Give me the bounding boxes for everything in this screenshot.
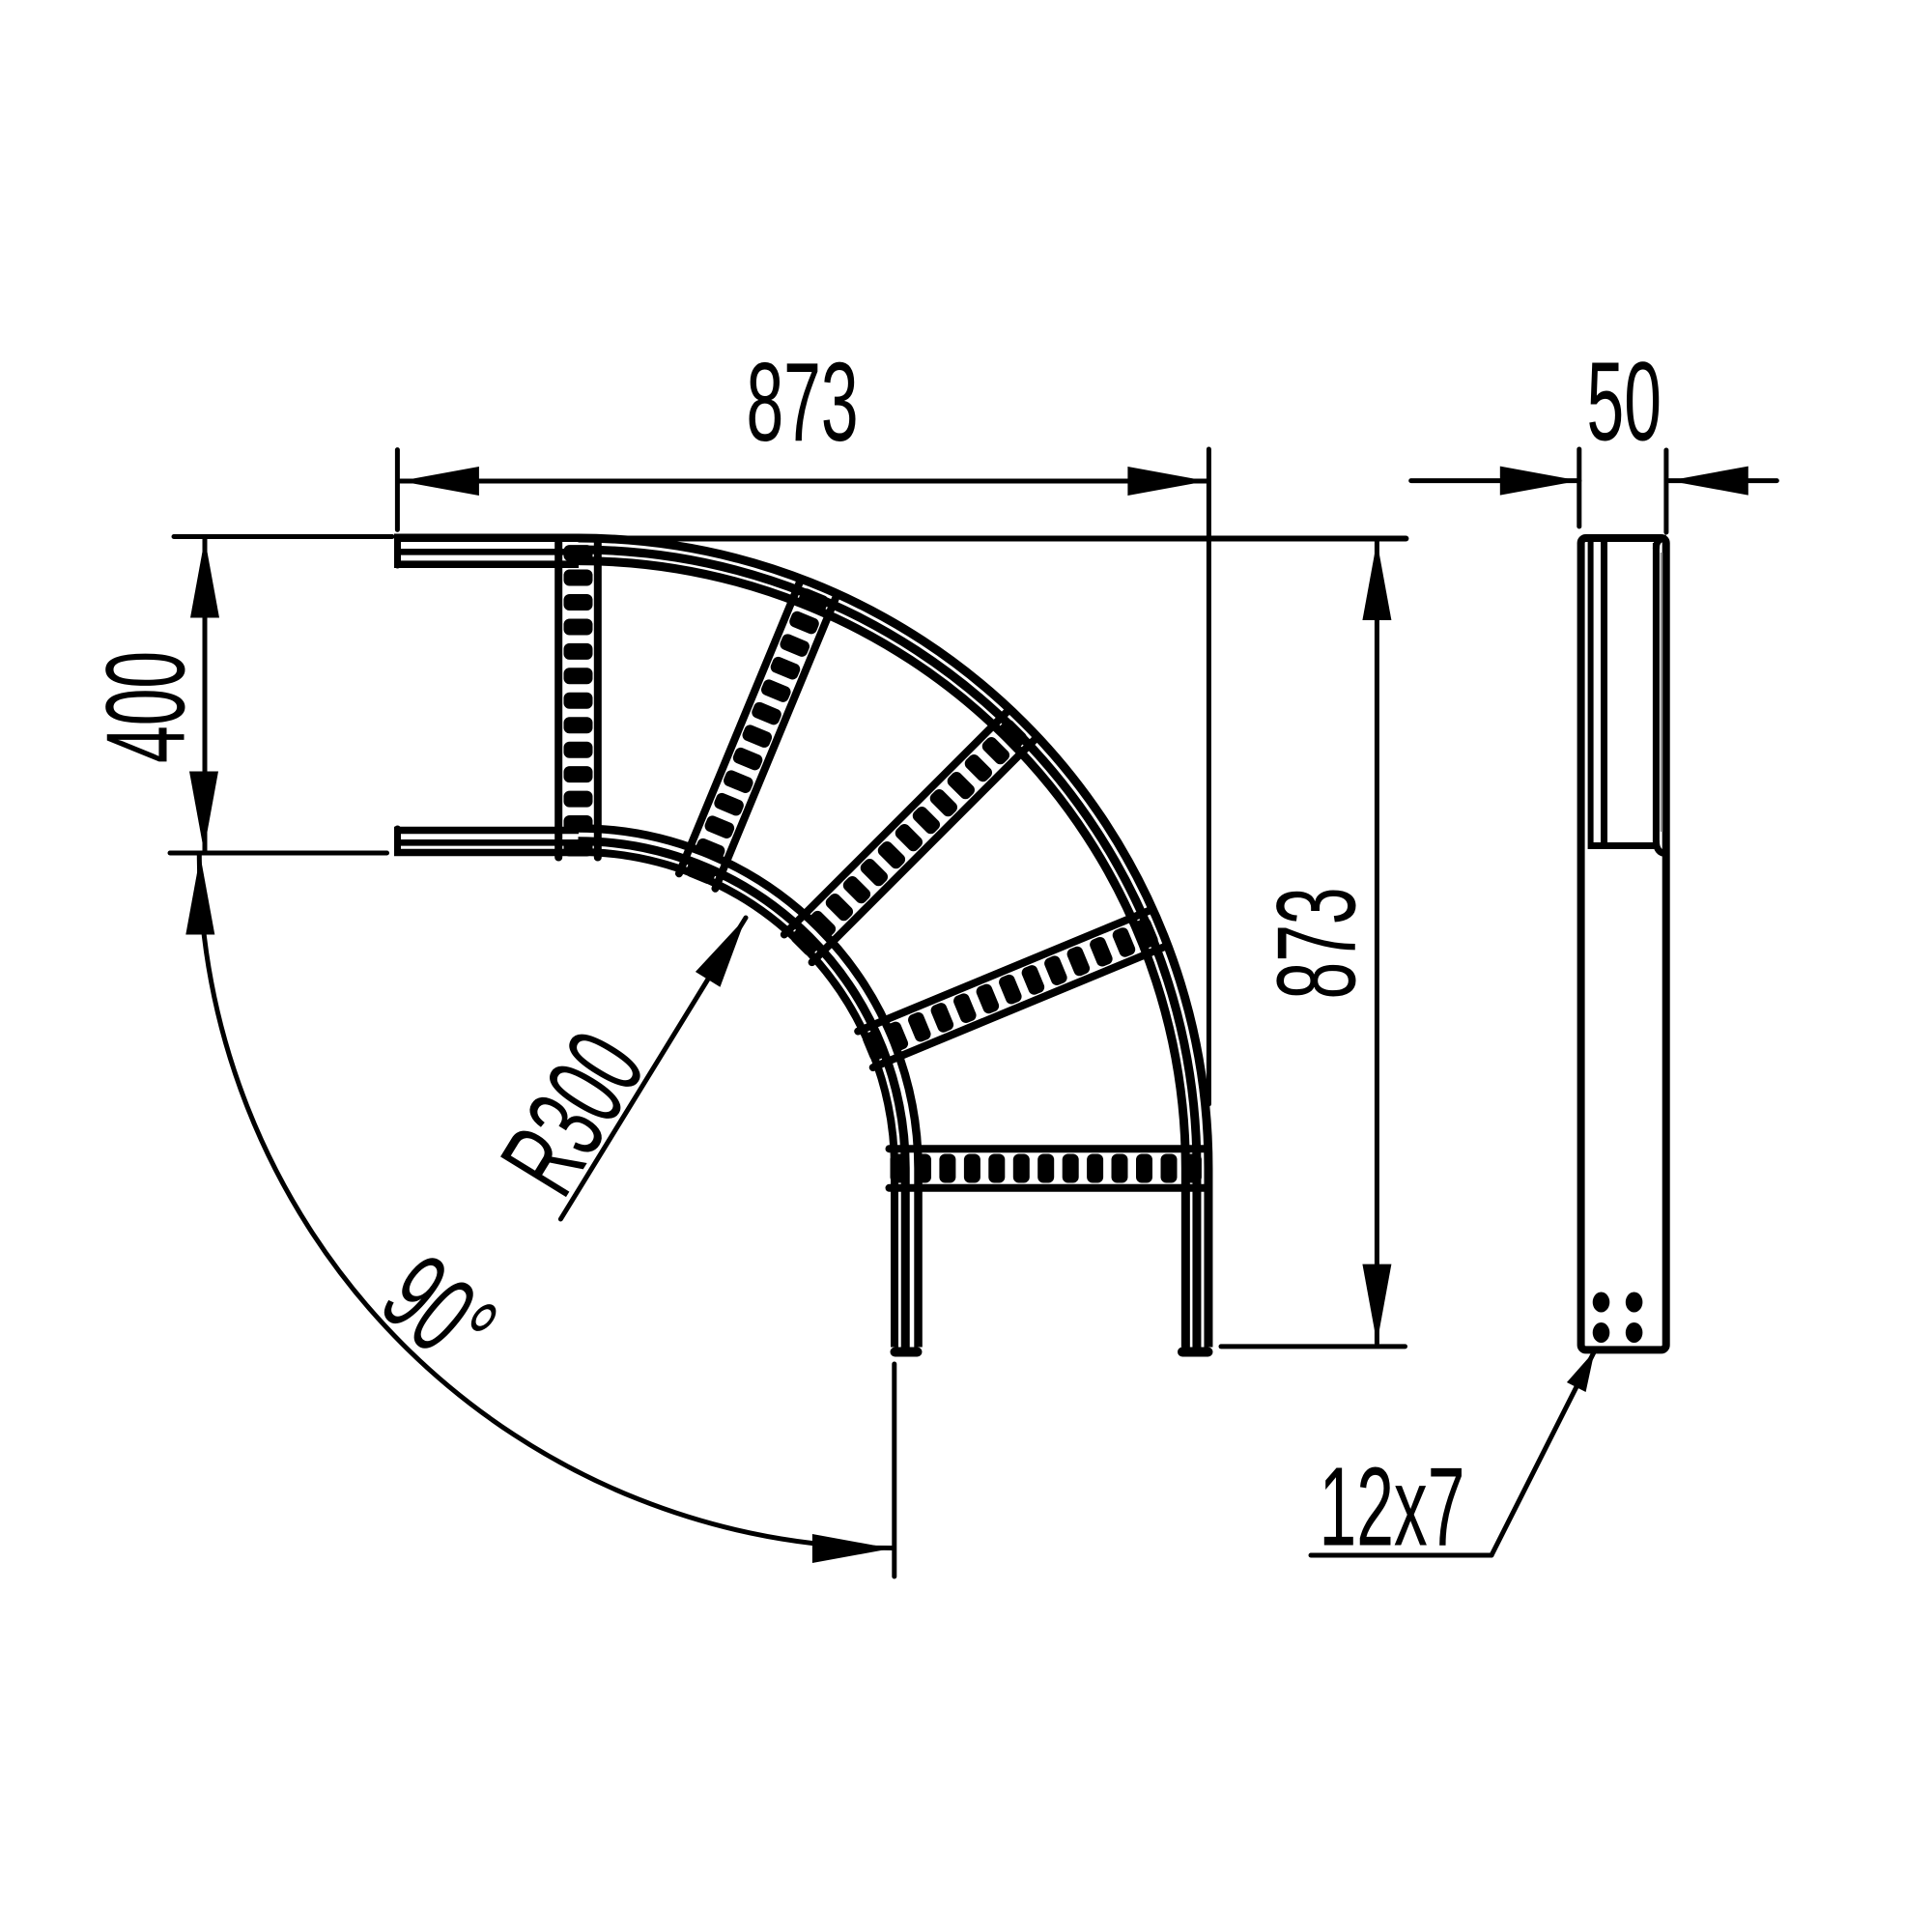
svg-text:12x7: 12x7 (1320, 1444, 1465, 1570)
svg-text:873: 873 (746, 340, 858, 466)
svg-text:50: 50 (1587, 339, 1662, 465)
svg-text:400: 400 (83, 651, 209, 763)
svg-text:873: 873 (1254, 887, 1379, 999)
